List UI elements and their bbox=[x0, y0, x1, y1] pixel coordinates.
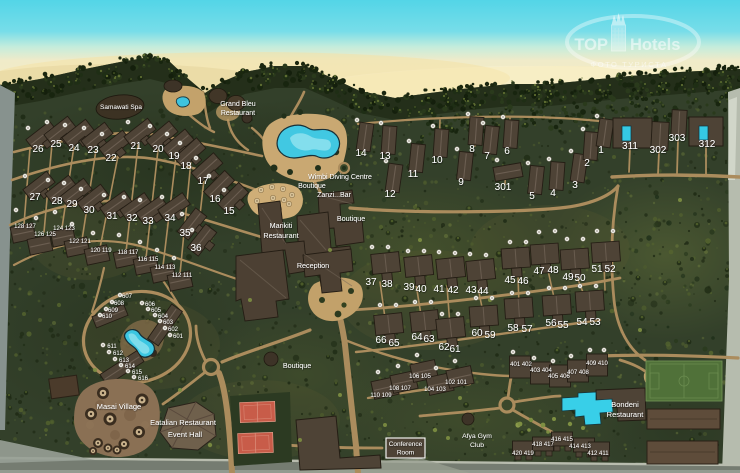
svg-text:414 413: 414 413 bbox=[569, 444, 591, 450]
svg-text:ФОТО ТУРИСТА: ФОТО ТУРИСТА bbox=[590, 60, 667, 69]
svg-text:Conference: Conference bbox=[389, 441, 423, 448]
svg-text:50: 50 bbox=[574, 273, 586, 284]
svg-text:57: 57 bbox=[521, 324, 533, 335]
svg-text:112 111: 112 111 bbox=[172, 273, 193, 279]
svg-text:407 408: 407 408 bbox=[567, 370, 589, 376]
svg-text:56: 56 bbox=[545, 318, 557, 329]
svg-text:17: 17 bbox=[197, 176, 209, 187]
svg-text:30: 30 bbox=[83, 205, 95, 216]
svg-text:38: 38 bbox=[381, 279, 393, 290]
svg-text:607: 607 bbox=[122, 294, 133, 300]
svg-text:31: 31 bbox=[106, 211, 118, 222]
svg-text:420 419: 420 419 bbox=[512, 451, 534, 457]
svg-text:409 410: 409 410 bbox=[586, 361, 608, 367]
svg-text:46: 46 bbox=[517, 276, 529, 287]
svg-text:Bondeni: Bondeni bbox=[611, 400, 639, 409]
svg-text:64: 64 bbox=[411, 332, 423, 343]
svg-text:60: 60 bbox=[471, 328, 483, 339]
svg-text:34: 34 bbox=[164, 213, 176, 224]
svg-text:15: 15 bbox=[223, 206, 235, 217]
svg-text:26: 26 bbox=[32, 144, 44, 155]
svg-text:118 117: 118 117 bbox=[118, 250, 139, 256]
svg-text:Afya Gym: Afya Gym bbox=[462, 433, 492, 440]
svg-text:37: 37 bbox=[365, 277, 377, 288]
svg-text:301: 301 bbox=[495, 182, 512, 193]
svg-text:7: 7 bbox=[484, 151, 490, 162]
svg-text:Wimbi Diving Centre: Wimbi Diving Centre bbox=[308, 174, 372, 181]
svg-text:108 107: 108 107 bbox=[389, 386, 411, 392]
svg-text:124 123: 124 123 bbox=[53, 226, 75, 232]
svg-text:602: 602 bbox=[168, 327, 179, 333]
svg-text:Restaurant: Restaurant bbox=[607, 410, 645, 419]
svg-text:35: 35 bbox=[179, 228, 191, 239]
svg-text:302: 302 bbox=[650, 145, 667, 156]
svg-text:2: 2 bbox=[584, 158, 590, 169]
svg-text:24: 24 bbox=[68, 143, 80, 154]
svg-text:23: 23 bbox=[87, 145, 99, 156]
svg-text:114 113: 114 113 bbox=[155, 265, 176, 271]
svg-text:25: 25 bbox=[50, 139, 62, 150]
svg-text:62: 62 bbox=[438, 342, 450, 353]
svg-text:312: 312 bbox=[699, 139, 716, 150]
svg-text:Marikiti: Marikiti bbox=[270, 221, 293, 230]
svg-text:52: 52 bbox=[604, 264, 616, 275]
svg-text:Hotels: Hotels bbox=[630, 36, 680, 54]
svg-text:9: 9 bbox=[458, 177, 464, 188]
svg-text:Reception: Reception bbox=[297, 261, 329, 270]
svg-text:102 101: 102 101 bbox=[445, 380, 467, 386]
svg-text:Club: Club bbox=[470, 442, 484, 449]
svg-text:51: 51 bbox=[591, 264, 603, 275]
svg-text:28: 28 bbox=[51, 196, 63, 207]
svg-text:66: 66 bbox=[375, 335, 387, 346]
svg-text:21: 21 bbox=[130, 141, 142, 152]
svg-text:33: 33 bbox=[142, 216, 154, 227]
svg-text:54: 54 bbox=[576, 317, 588, 328]
svg-text:16: 16 bbox=[209, 194, 221, 205]
svg-text:65: 65 bbox=[388, 338, 400, 349]
svg-text:Grand Bleu: Grand Bleu bbox=[220, 101, 256, 108]
svg-text:8: 8 bbox=[469, 144, 475, 155]
svg-text:13: 13 bbox=[379, 151, 391, 162]
svg-text:616: 616 bbox=[138, 376, 149, 382]
svg-text:42: 42 bbox=[447, 285, 459, 296]
svg-text:126 125: 126 125 bbox=[34, 232, 56, 238]
svg-text:18: 18 bbox=[180, 161, 192, 172]
svg-text:418 417: 418 417 bbox=[532, 442, 554, 448]
svg-text:120 119: 120 119 bbox=[90, 248, 112, 254]
svg-text:Room: Room bbox=[397, 450, 414, 457]
svg-text:43: 43 bbox=[465, 285, 477, 296]
svg-text:Restaurant: Restaurant bbox=[221, 110, 255, 117]
svg-text:603: 603 bbox=[163, 320, 174, 326]
svg-text:Restaurant: Restaurant bbox=[263, 231, 298, 240]
svg-text:47: 47 bbox=[533, 266, 545, 277]
svg-text:5: 5 bbox=[529, 191, 535, 202]
svg-text:128 127: 128 127 bbox=[14, 224, 36, 230]
svg-text:45: 45 bbox=[504, 275, 516, 286]
svg-text:32: 32 bbox=[126, 213, 138, 224]
svg-text:11: 11 bbox=[408, 169, 419, 180]
svg-text:49: 49 bbox=[562, 272, 574, 283]
svg-text:Boutique: Boutique bbox=[298, 183, 326, 190]
svg-text:Boutique: Boutique bbox=[337, 214, 365, 223]
svg-text:412 411: 412 411 bbox=[587, 451, 609, 457]
svg-text:Boutique: Boutique bbox=[283, 361, 311, 370]
svg-text:6: 6 bbox=[504, 146, 510, 157]
svg-text:20: 20 bbox=[152, 144, 164, 155]
svg-text:48: 48 bbox=[547, 265, 559, 276]
svg-text:601: 601 bbox=[173, 334, 184, 340]
svg-text:311: 311 bbox=[622, 141, 638, 152]
svg-text:116 115: 116 115 bbox=[138, 257, 159, 263]
svg-text:Samawati Spa: Samawati Spa bbox=[100, 104, 142, 111]
svg-text:55: 55 bbox=[557, 320, 569, 331]
svg-text:10: 10 bbox=[431, 155, 443, 166]
svg-text:401 402: 401 402 bbox=[510, 362, 532, 368]
svg-text:104 103: 104 103 bbox=[424, 387, 446, 393]
svg-text:63: 63 bbox=[423, 334, 435, 345]
svg-text:Event Hall: Event Hall bbox=[168, 430, 203, 439]
svg-text:612: 612 bbox=[113, 351, 124, 357]
svg-text:58: 58 bbox=[507, 323, 519, 334]
svg-text:22: 22 bbox=[105, 153, 117, 164]
svg-text:122 121: 122 121 bbox=[69, 239, 91, 245]
svg-text:611: 611 bbox=[107, 344, 117, 350]
svg-text:608: 608 bbox=[114, 301, 125, 307]
svg-text:Masai Village: Masai Village bbox=[97, 402, 141, 411]
svg-text:1: 1 bbox=[598, 145, 604, 156]
svg-text:Eatalian Restaurant: Eatalian Restaurant bbox=[150, 418, 217, 427]
svg-text:Zanzi...Bar: Zanzi...Bar bbox=[317, 192, 352, 199]
svg-text:61: 61 bbox=[449, 344, 461, 355]
svg-text:110 109: 110 109 bbox=[370, 393, 392, 399]
svg-text:106 105: 106 105 bbox=[409, 374, 431, 380]
svg-text:4: 4 bbox=[550, 188, 556, 199]
svg-text:29: 29 bbox=[66, 199, 78, 210]
svg-text:416 415: 416 415 bbox=[551, 437, 573, 443]
svg-text:12: 12 bbox=[384, 189, 396, 200]
svg-text:610: 610 bbox=[102, 314, 113, 320]
svg-text:3: 3 bbox=[572, 180, 578, 191]
svg-text:39: 39 bbox=[403, 282, 415, 293]
svg-text:TOP: TOP bbox=[574, 36, 608, 54]
svg-text:36: 36 bbox=[190, 243, 202, 254]
svg-text:14: 14 bbox=[355, 148, 367, 159]
svg-text:44: 44 bbox=[477, 286, 489, 297]
svg-text:59: 59 bbox=[484, 330, 496, 341]
svg-text:40: 40 bbox=[415, 284, 427, 295]
svg-text:303: 303 bbox=[669, 133, 686, 144]
svg-text:27: 27 bbox=[29, 192, 41, 203]
svg-text:53: 53 bbox=[589, 317, 601, 328]
svg-text:19: 19 bbox=[168, 151, 180, 162]
svg-text:41: 41 bbox=[433, 284, 445, 295]
